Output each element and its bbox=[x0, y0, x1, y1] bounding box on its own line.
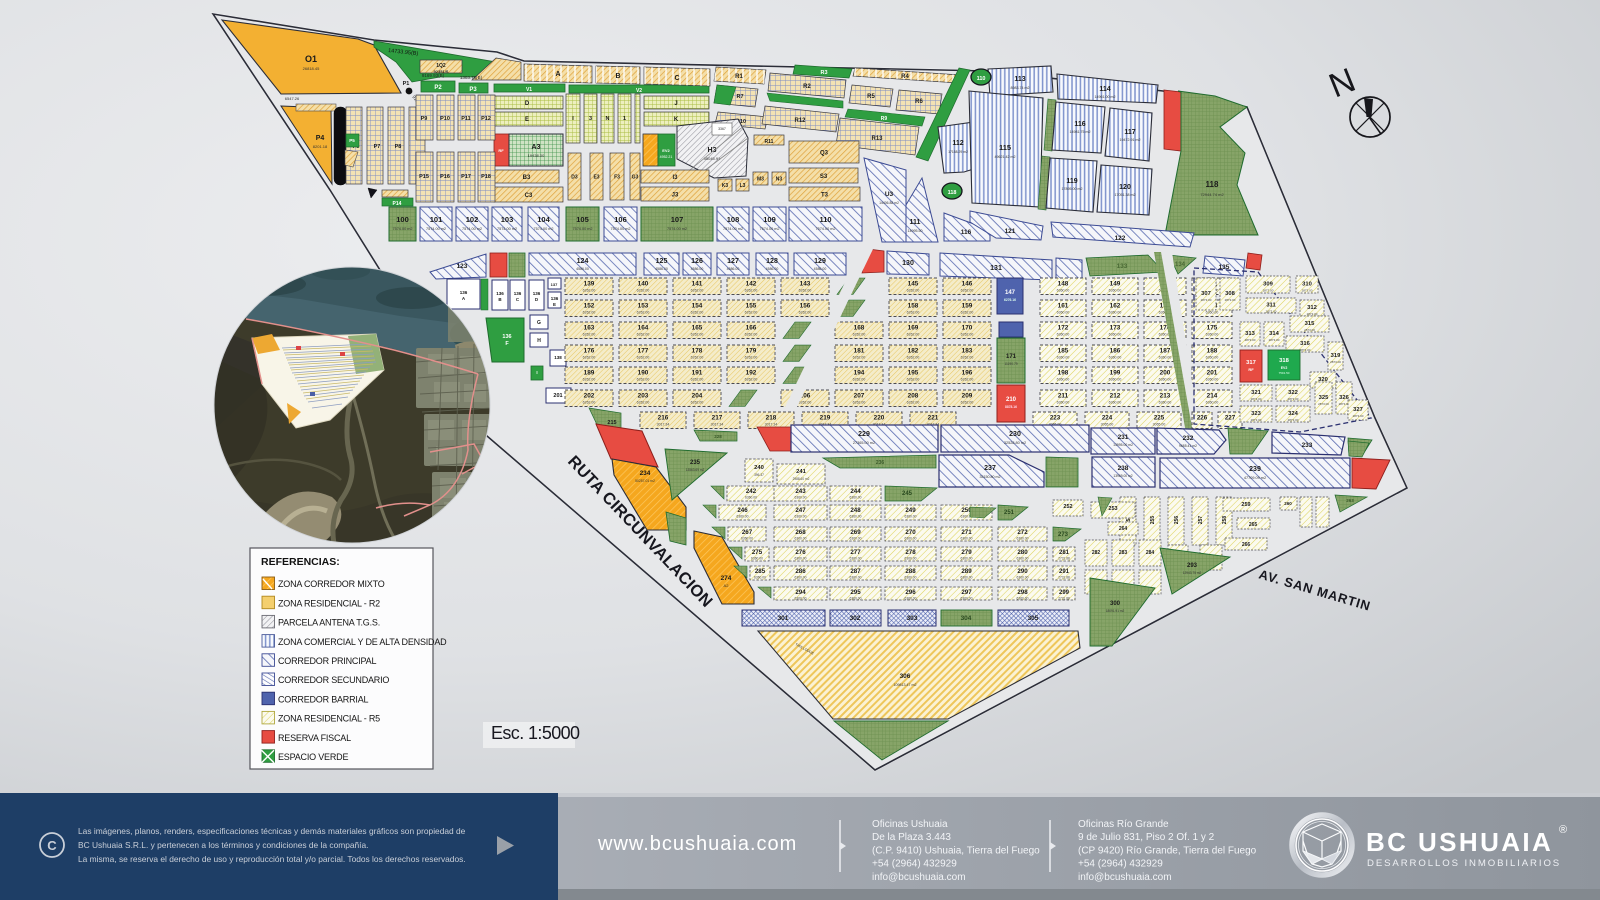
svg-text:129: 129 bbox=[814, 258, 826, 265]
svg-text:6360.00: 6360.00 bbox=[1109, 289, 1122, 293]
svg-text:210: 210 bbox=[1006, 397, 1017, 403]
svg-text:209: 209 bbox=[962, 393, 973, 400]
svg-text:282: 282 bbox=[1092, 550, 1101, 556]
svg-text:295: 295 bbox=[850, 589, 861, 596]
svg-text:6360.00: 6360.00 bbox=[1159, 401, 1172, 405]
svg-text:110: 110 bbox=[819, 215, 831, 224]
svg-text:A: A bbox=[555, 71, 560, 78]
svg-text:72944.74 m2: 72944.74 m2 bbox=[1200, 192, 1224, 197]
svg-text:BC USHUAIA: BC USHUAIA bbox=[1366, 827, 1553, 857]
svg-text:168: 168 bbox=[854, 325, 865, 332]
svg-text:6360.00: 6360.00 bbox=[1017, 557, 1029, 561]
svg-text:P15: P15 bbox=[419, 174, 429, 180]
svg-text:14406.88 m2: 14406.88 m2 bbox=[879, 201, 899, 205]
svg-text:302: 302 bbox=[850, 615, 861, 622]
svg-text:E: E bbox=[525, 117, 529, 123]
svg-text:6360.00: 6360.00 bbox=[850, 597, 862, 601]
svg-text:133: 133 bbox=[1117, 263, 1128, 270]
svg-text:2988.60 m2: 2988.60 m2 bbox=[793, 477, 810, 481]
svg-text:109: 109 bbox=[763, 215, 776, 224]
svg-text:114: 114 bbox=[1099, 86, 1110, 93]
svg-text:F3: F3 bbox=[614, 175, 620, 181]
svg-text:P14: P14 bbox=[393, 201, 402, 207]
svg-text:100: 100 bbox=[396, 215, 409, 224]
svg-text:304: 304 bbox=[961, 615, 972, 622]
svg-text:165: 165 bbox=[692, 325, 703, 332]
svg-text:6360.00: 6360.00 bbox=[1159, 378, 1172, 382]
svg-text:V1: V1 bbox=[526, 87, 532, 93]
svg-text:K: K bbox=[674, 117, 679, 123]
svg-text:7574.00 m2: 7574.00 m2 bbox=[610, 227, 630, 231]
svg-text:6360.00: 6360.00 bbox=[1017, 537, 1029, 541]
svg-text:3017.34: 3017.34 bbox=[711, 423, 724, 427]
svg-text:117: 117 bbox=[1124, 129, 1135, 136]
svg-text:6360.00: 6360.00 bbox=[850, 557, 862, 561]
svg-text:136: 136 bbox=[502, 334, 511, 340]
svg-text:173: 173 bbox=[1110, 325, 1121, 332]
svg-text:109813.47 m2: 109813.47 m2 bbox=[894, 683, 917, 687]
svg-text:112: 112 bbox=[952, 140, 963, 147]
svg-text:327: 327 bbox=[1353, 407, 1363, 413]
svg-text:166: 166 bbox=[746, 325, 757, 332]
svg-text:191: 191 bbox=[692, 370, 703, 377]
svg-text:237: 237 bbox=[984, 465, 996, 472]
svg-text:218: 218 bbox=[766, 415, 777, 422]
svg-text:2731.88: 2731.88 bbox=[1058, 576, 1070, 580]
svg-text:136: 136 bbox=[496, 291, 504, 296]
svg-text:120: 120 bbox=[1119, 184, 1131, 191]
svg-text:170: 170 bbox=[962, 325, 973, 332]
svg-text:R6: R6 bbox=[915, 99, 923, 105]
svg-text:(CP 9420) Río Grande, Tierra d: (CP 9420) Río Grande, Tierra del Fuego bbox=[1078, 845, 1257, 856]
svg-text:2873.00: 2873.00 bbox=[1266, 310, 1277, 314]
svg-text:P9: P9 bbox=[421, 116, 428, 122]
svg-text:231: 231 bbox=[1118, 434, 1129, 441]
svg-text:CORREDOR BARRIAL: CORREDOR BARRIAL bbox=[278, 694, 369, 704]
svg-text:27365.00 m2: 27365.00 m2 bbox=[853, 441, 875, 445]
svg-text:137: 137 bbox=[551, 282, 558, 287]
svg-text:291: 291 bbox=[1059, 569, 1070, 575]
svg-text:177: 177 bbox=[638, 348, 649, 355]
svg-text:192: 192 bbox=[746, 370, 757, 377]
svg-text:+54 (2964) 432929: +54 (2964) 432929 bbox=[872, 859, 957, 870]
svg-text:264: 264 bbox=[1119, 526, 1128, 532]
svg-text:268: 268 bbox=[795, 529, 806, 536]
svg-text:162: 162 bbox=[1110, 303, 1121, 310]
svg-text:203: 203 bbox=[638, 393, 649, 400]
svg-text:2873.00: 2873.00 bbox=[1307, 312, 1318, 316]
svg-text:6262.00: 6262.00 bbox=[853, 356, 866, 360]
svg-text:14961.00 m2: 14961.00 m2 bbox=[1095, 95, 1116, 99]
svg-text:224: 224 bbox=[1102, 415, 1113, 422]
svg-text:113: 113 bbox=[1014, 76, 1025, 83]
svg-text:I3: I3 bbox=[672, 175, 678, 181]
svg-text:136: 136 bbox=[514, 291, 522, 296]
svg-text:6360.00: 6360.00 bbox=[905, 597, 917, 601]
svg-text:EV2: EV2 bbox=[1281, 366, 1288, 370]
svg-text:273: 273 bbox=[1058, 532, 1069, 538]
svg-text:6262.00: 6262.00 bbox=[583, 378, 596, 382]
svg-text:155: 155 bbox=[746, 303, 757, 310]
svg-text:6262.00: 6262.00 bbox=[961, 378, 974, 382]
svg-text:17158.29 m2: 17158.29 m2 bbox=[948, 150, 968, 154]
svg-text:169: 169 bbox=[908, 325, 919, 332]
svg-text:H: H bbox=[537, 338, 541, 344]
svg-text:T3: T3 bbox=[821, 193, 829, 199]
svg-text:7574.00 m2: 7574.00 m2 bbox=[392, 227, 412, 231]
svg-text:201: 201 bbox=[553, 393, 562, 399]
svg-text:7574.00 m2: 7574.00 m2 bbox=[759, 227, 779, 231]
svg-text:6360.00: 6360.00 bbox=[1159, 356, 1172, 360]
svg-text:6360.00: 6360.00 bbox=[850, 537, 862, 541]
svg-text:32528.80 m2: 32528.80 m2 bbox=[1004, 441, 1026, 445]
svg-text:201: 201 bbox=[1207, 370, 1218, 377]
svg-text:4952.21: 4952.21 bbox=[660, 155, 673, 159]
svg-text:241: 241 bbox=[796, 469, 806, 475]
svg-text:310: 310 bbox=[1302, 282, 1312, 288]
svg-text:309: 309 bbox=[1263, 282, 1273, 288]
svg-text:7574.00 m2: 7574.00 m2 bbox=[723, 227, 743, 231]
svg-text:281: 281 bbox=[1059, 550, 1070, 556]
svg-text:211: 211 bbox=[1058, 393, 1069, 400]
svg-text:186: 186 bbox=[1110, 348, 1121, 355]
svg-text:Oficinas Río Grande: Oficinas Río Grande bbox=[1078, 819, 1169, 830]
svg-text:6262.00: 6262.00 bbox=[691, 378, 704, 382]
svg-text:6360.00: 6360.00 bbox=[1109, 401, 1122, 405]
svg-text:9169.93(B): 9169.93(B) bbox=[422, 73, 445, 78]
svg-text:148: 148 bbox=[1058, 281, 1069, 288]
svg-text:3367: 3367 bbox=[718, 127, 726, 131]
svg-text:232: 232 bbox=[1183, 435, 1194, 442]
svg-text:CORREDOR PRINCIPAL: CORREDOR PRINCIPAL bbox=[278, 656, 376, 666]
svg-text:C: C bbox=[674, 75, 679, 82]
svg-text:RF: RF bbox=[498, 148, 504, 153]
svg-text:P12: P12 bbox=[481, 116, 491, 122]
svg-text:204: 204 bbox=[692, 393, 703, 400]
svg-text:J3: J3 bbox=[672, 193, 679, 199]
svg-text:R2: R2 bbox=[803, 84, 811, 90]
svg-text:274: 274 bbox=[721, 575, 732, 582]
svg-text:7574.00 m2: 7574.00 m2 bbox=[572, 227, 592, 231]
svg-text:6360.00: 6360.00 bbox=[737, 515, 749, 519]
svg-text:207: 207 bbox=[854, 393, 865, 400]
svg-text:2873.00: 2873.00 bbox=[1318, 402, 1329, 406]
svg-text:13563.69 m2: 13563.69 m2 bbox=[686, 468, 705, 472]
svg-text:3: 3 bbox=[589, 116, 592, 122]
svg-text:3065.00: 3065.00 bbox=[1101, 423, 1114, 427]
svg-text:Esc. 1:5000: Esc. 1:5000 bbox=[491, 723, 580, 743]
svg-text:J: J bbox=[674, 101, 677, 107]
svg-text:246: 246 bbox=[737, 507, 748, 514]
svg-text:A3: A3 bbox=[532, 144, 541, 151]
svg-text:RESERVA FISCAL: RESERVA FISCAL bbox=[278, 733, 351, 743]
svg-text:18091.91 m2: 18091.91 m2 bbox=[1106, 609, 1125, 613]
svg-text:228: 228 bbox=[714, 434, 722, 439]
svg-text:RF: RF bbox=[1248, 367, 1254, 372]
svg-text:226: 226 bbox=[1197, 415, 1208, 422]
svg-text:196: 196 bbox=[962, 370, 973, 377]
svg-text:S3: S3 bbox=[820, 174, 828, 180]
svg-text:253: 253 bbox=[1108, 506, 1117, 512]
svg-text:6360.00: 6360.00 bbox=[1057, 401, 1070, 405]
svg-text:130: 130 bbox=[902, 260, 914, 267]
svg-text:298: 298 bbox=[1017, 589, 1028, 596]
svg-text:172: 172 bbox=[1058, 325, 1069, 332]
svg-text:280: 280 bbox=[1017, 549, 1028, 556]
svg-text:6262.00: 6262.00 bbox=[961, 356, 974, 360]
svg-text:4586.00: 4586.00 bbox=[691, 267, 704, 271]
svg-text:127: 127 bbox=[727, 258, 739, 265]
svg-text:3017.34: 3017.34 bbox=[657, 423, 670, 427]
svg-text:317: 317 bbox=[1246, 360, 1256, 366]
svg-text:175: 175 bbox=[1207, 325, 1218, 332]
svg-text:2873.00: 2873.00 bbox=[1300, 348, 1311, 352]
svg-text:6262.00: 6262.00 bbox=[583, 289, 596, 293]
svg-text:4586.00: 4586.00 bbox=[814, 267, 827, 271]
svg-text:6360.00: 6360.00 bbox=[961, 597, 973, 601]
svg-text:275: 275 bbox=[752, 549, 763, 556]
svg-text:6360.00: 6360.00 bbox=[795, 557, 807, 561]
svg-text:149: 149 bbox=[1110, 281, 1121, 288]
svg-text:19472.91 m2: 19472.91 m2 bbox=[1120, 138, 1141, 142]
svg-text:325: 325 bbox=[1319, 395, 1329, 401]
svg-text:6262.00: 6262.00 bbox=[637, 289, 650, 293]
svg-text:6360.00: 6360.00 bbox=[1057, 333, 1070, 337]
svg-text:6360.00: 6360.00 bbox=[1017, 597, 1029, 601]
svg-text:189: 189 bbox=[584, 370, 595, 377]
svg-text:N3: N3 bbox=[776, 177, 783, 183]
svg-text:263: 263 bbox=[1346, 498, 1354, 503]
svg-text:183: 183 bbox=[962, 348, 973, 355]
svg-text:234: 234 bbox=[640, 470, 651, 477]
svg-text:313: 313 bbox=[1245, 331, 1255, 337]
svg-text:13995.00 m2: 13995.00 m2 bbox=[1113, 443, 1133, 447]
svg-text:2873.00: 2873.00 bbox=[1353, 414, 1364, 418]
svg-text:8201.18: 8201.18 bbox=[313, 144, 328, 149]
svg-text:7591.50: 7591.50 bbox=[1279, 371, 1290, 375]
svg-text:8983.74 m2: 8983.74 m2 bbox=[1011, 86, 1030, 90]
svg-text:147: 147 bbox=[1005, 290, 1016, 296]
svg-text:116: 116 bbox=[961, 229, 972, 236]
svg-text:285: 285 bbox=[755, 568, 766, 575]
svg-text:103: 103 bbox=[501, 215, 514, 224]
svg-text:6262.00: 6262.00 bbox=[691, 401, 704, 405]
svg-text:K3: K3 bbox=[722, 183, 729, 189]
svg-text:6262.00: 6262.00 bbox=[799, 289, 812, 293]
svg-text:4586.00: 4586.00 bbox=[727, 267, 740, 271]
svg-text:6360.00: 6360.00 bbox=[745, 496, 757, 500]
svg-text:6360.00: 6360.00 bbox=[795, 576, 807, 580]
svg-text:239: 239 bbox=[1249, 466, 1261, 473]
svg-text:215: 215 bbox=[607, 420, 616, 426]
svg-text:3065.00: 3065.00 bbox=[1153, 423, 1166, 427]
svg-text:17895.00 m2: 17895.00 m2 bbox=[1062, 187, 1083, 191]
svg-text:REFERENCIAS:: REFERENCIAS: bbox=[261, 556, 340, 568]
svg-text:217: 217 bbox=[712, 415, 723, 422]
svg-text:info@bcushuaia.com: info@bcushuaia.com bbox=[872, 872, 966, 883]
svg-text:P18: P18 bbox=[481, 174, 491, 180]
svg-text:6262.00: 6262.00 bbox=[637, 378, 650, 382]
svg-text:P2: P2 bbox=[434, 85, 442, 91]
svg-text:(C.P. 9410) Ushuaia, Tierra de: (C.P. 9410) Ushuaia, Tierra del Fuego bbox=[872, 845, 1040, 856]
svg-text:6360.00: 6360.00 bbox=[850, 496, 862, 500]
svg-text:6360.00: 6360.00 bbox=[961, 557, 973, 561]
svg-text:6262.00: 6262.00 bbox=[907, 311, 920, 315]
svg-text:info@bcushuaia.com: info@bcushuaia.com bbox=[1078, 872, 1172, 883]
svg-text:245: 245 bbox=[902, 491, 913, 497]
svg-text:227: 227 bbox=[1225, 415, 1236, 422]
svg-text:26818.45: 26818.45 bbox=[303, 66, 320, 71]
svg-text:220: 220 bbox=[874, 415, 885, 422]
svg-text:159: 159 bbox=[962, 303, 973, 310]
svg-text:R4: R4 bbox=[901, 74, 909, 80]
svg-text:199: 199 bbox=[1110, 370, 1121, 377]
svg-text:6360.00: 6360.00 bbox=[1206, 333, 1219, 337]
svg-text:143: 143 bbox=[800, 281, 811, 288]
svg-text:P8: P8 bbox=[395, 144, 402, 150]
svg-text:178: 178 bbox=[692, 348, 703, 355]
svg-text:238: 238 bbox=[1118, 465, 1129, 472]
svg-text:14995.50: 14995.50 bbox=[908, 229, 923, 233]
svg-text:P10: P10 bbox=[440, 116, 450, 122]
svg-text:6360.00: 6360.00 bbox=[741, 537, 753, 541]
svg-text:296: 296 bbox=[905, 589, 916, 596]
svg-text:6360.00: 6360.00 bbox=[850, 576, 862, 580]
svg-text:R13: R13 bbox=[871, 136, 883, 142]
svg-text:+54 (2964) 432929: +54 (2964) 432929 bbox=[1078, 859, 1163, 870]
svg-text:266: 266 bbox=[1242, 542, 1251, 548]
svg-text:PARCELA ANTENA T.G.S.: PARCELA ANTENA T.G.S. bbox=[278, 618, 380, 628]
svg-text:154: 154 bbox=[692, 303, 703, 310]
svg-text:101: 101 bbox=[430, 215, 443, 224]
svg-text:272: 272 bbox=[1017, 529, 1028, 536]
svg-text:107: 107 bbox=[671, 215, 684, 224]
svg-text:284: 284 bbox=[1146, 550, 1155, 556]
svg-text:6262.00: 6262.00 bbox=[907, 378, 920, 382]
svg-text:6262.00: 6262.00 bbox=[745, 356, 758, 360]
svg-text:164: 164 bbox=[638, 325, 649, 332]
svg-text:131: 131 bbox=[990, 265, 1002, 272]
svg-text:158: 158 bbox=[908, 303, 919, 310]
svg-text:R1: R1 bbox=[735, 74, 743, 80]
svg-text:289: 289 bbox=[961, 568, 972, 575]
svg-text:7574.00 m2: 7574.00 m2 bbox=[815, 227, 835, 231]
svg-text:290: 290 bbox=[1017, 568, 1028, 575]
svg-text:287: 287 bbox=[850, 568, 861, 575]
svg-text:ZONA CORREDOR MIXTO: ZONA CORREDOR MIXTO bbox=[278, 579, 385, 589]
svg-text:P3: P3 bbox=[469, 87, 477, 93]
svg-text:6360.00: 6360.00 bbox=[795, 515, 807, 519]
svg-text:17051.38 m2: 17051.38 m2 bbox=[1115, 193, 1136, 197]
svg-text:2731.88: 2731.88 bbox=[1058, 557, 1070, 561]
svg-text:122: 122 bbox=[1115, 235, 1126, 242]
svg-text:279: 279 bbox=[961, 549, 972, 556]
svg-text:2873.00: 2873.00 bbox=[1288, 418, 1299, 422]
svg-text:259: 259 bbox=[1241, 502, 1250, 508]
svg-text:6360.00: 6360.00 bbox=[905, 557, 917, 561]
svg-text:6262.00: 6262.00 bbox=[853, 333, 866, 337]
svg-text:6262.00: 6262.00 bbox=[691, 356, 704, 360]
svg-text:G3: G3 bbox=[632, 175, 639, 181]
svg-text:126: 126 bbox=[691, 258, 703, 265]
svg-text:6262.00: 6262.00 bbox=[961, 311, 974, 315]
svg-text:323: 323 bbox=[1251, 411, 1261, 417]
svg-text:140: 140 bbox=[638, 281, 649, 288]
svg-text:6262.00: 6262.00 bbox=[691, 311, 704, 315]
svg-text:260: 260 bbox=[1284, 501, 1292, 506]
svg-text:104: 104 bbox=[537, 215, 550, 224]
svg-text:125: 125 bbox=[656, 258, 668, 265]
svg-text:49621.42 m2: 49621.42 m2 bbox=[995, 155, 1016, 159]
svg-text:I: I bbox=[536, 370, 537, 375]
svg-text:249: 249 bbox=[905, 507, 916, 514]
svg-text:311: 311 bbox=[1266, 303, 1276, 309]
svg-text:14981.75 m2: 14981.75 m2 bbox=[1070, 130, 1091, 134]
svg-text:12943.75 m2: 12943.75 m2 bbox=[1183, 571, 1202, 575]
svg-text:19438.00: 19438.00 bbox=[528, 153, 545, 158]
svg-text:6262.00: 6262.00 bbox=[853, 378, 866, 382]
svg-text:248: 248 bbox=[850, 507, 861, 514]
svg-text:9 de Julio 831, Piso 2 Of. 1 y: 9 de Julio 831, Piso 2 Of. 1 y 2 bbox=[1078, 832, 1215, 843]
svg-text:DESARROLLOS INMOBILIARIOS: DESARROLLOS INMOBILIARIOS bbox=[1367, 858, 1561, 869]
svg-text:243: 243 bbox=[795, 488, 806, 495]
svg-text:2873.00: 2873.00 bbox=[1330, 360, 1341, 364]
svg-text:6360.00: 6360.00 bbox=[1057, 289, 1070, 293]
svg-text:300: 300 bbox=[1110, 601, 1121, 607]
svg-text:124: 124 bbox=[577, 258, 589, 265]
svg-text:6360.00: 6360.00 bbox=[905, 537, 917, 541]
svg-text:139: 139 bbox=[584, 281, 595, 288]
svg-text:6360.00: 6360.00 bbox=[1206, 378, 1219, 382]
svg-text:2873.00: 2873.00 bbox=[1251, 397, 1262, 401]
svg-text:257: 257 bbox=[1198, 516, 1204, 525]
svg-text:ESPACIO VERDE: ESPACIO VERDE bbox=[278, 752, 348, 762]
svg-text:270: 270 bbox=[905, 529, 916, 536]
svg-text:6360.00: 6360.00 bbox=[905, 515, 917, 519]
svg-text:185: 185 bbox=[1058, 348, 1069, 355]
svg-text:6360.00: 6360.00 bbox=[1057, 378, 1070, 382]
svg-text:187: 187 bbox=[1160, 348, 1171, 355]
svg-text:208: 208 bbox=[908, 393, 919, 400]
svg-text:278: 278 bbox=[905, 549, 916, 556]
svg-text:212: 212 bbox=[1110, 393, 1121, 400]
svg-text:P11: P11 bbox=[461, 116, 470, 122]
svg-text:7574.00 m2: 7574.00 m2 bbox=[533, 227, 553, 231]
svg-text:2731.88: 2731.88 bbox=[1058, 597, 1070, 601]
svg-text:146: 146 bbox=[962, 281, 973, 288]
svg-text:242: 242 bbox=[746, 488, 757, 495]
svg-text:6360.00: 6360.00 bbox=[850, 515, 862, 519]
svg-text:188: 188 bbox=[1207, 348, 1218, 355]
svg-text:121: 121 bbox=[1005, 228, 1016, 235]
svg-text:6360.00: 6360.00 bbox=[1206, 311, 1219, 315]
svg-text:319: 319 bbox=[1331, 353, 1341, 359]
svg-text:6360.00: 6360.00 bbox=[1109, 356, 1122, 360]
svg-text:6262.00: 6262.00 bbox=[961, 289, 974, 293]
svg-text:182: 182 bbox=[908, 348, 919, 355]
svg-text:216: 216 bbox=[658, 415, 669, 422]
svg-text:P5: P5 bbox=[349, 138, 355, 143]
svg-text:R11: R11 bbox=[765, 139, 774, 145]
svg-text:202: 202 bbox=[584, 393, 595, 400]
svg-text:214: 214 bbox=[1207, 393, 1218, 400]
svg-text:6360.00: 6360.00 bbox=[1206, 401, 1219, 405]
svg-text:6262.00: 6262.00 bbox=[745, 311, 758, 315]
svg-text:6262.00: 6262.00 bbox=[961, 401, 974, 405]
svg-text:299: 299 bbox=[1059, 590, 1070, 596]
svg-text:6360.00: 6360.00 bbox=[1109, 333, 1122, 337]
svg-text:2873.00: 2873.00 bbox=[1269, 338, 1280, 342]
